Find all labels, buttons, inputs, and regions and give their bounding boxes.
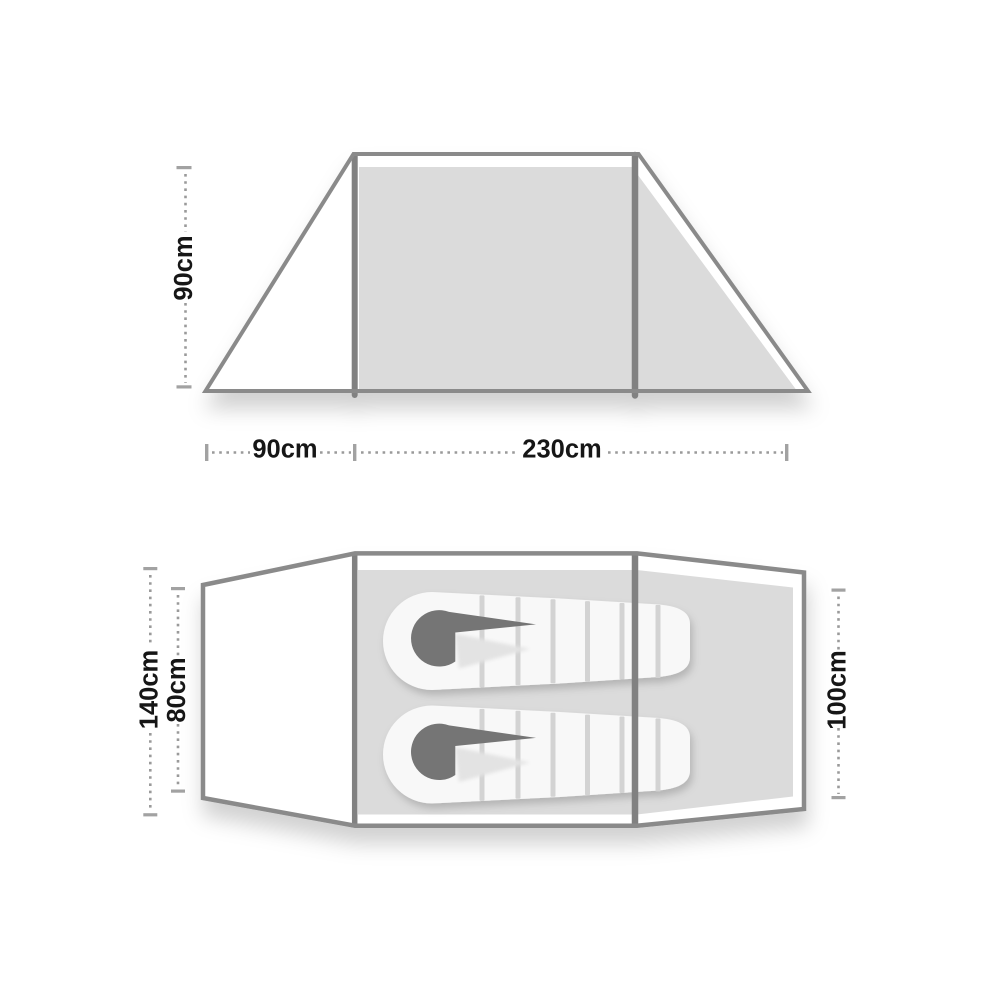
svg-text:230cm: 230cm [522,436,601,464]
svg-text:90cm: 90cm [252,436,317,464]
svg-text:80cm: 80cm [163,657,191,722]
svg-text:90cm: 90cm [170,235,198,300]
svg-text:100cm: 100cm [824,650,852,729]
svg-text:140cm: 140cm [136,650,164,729]
